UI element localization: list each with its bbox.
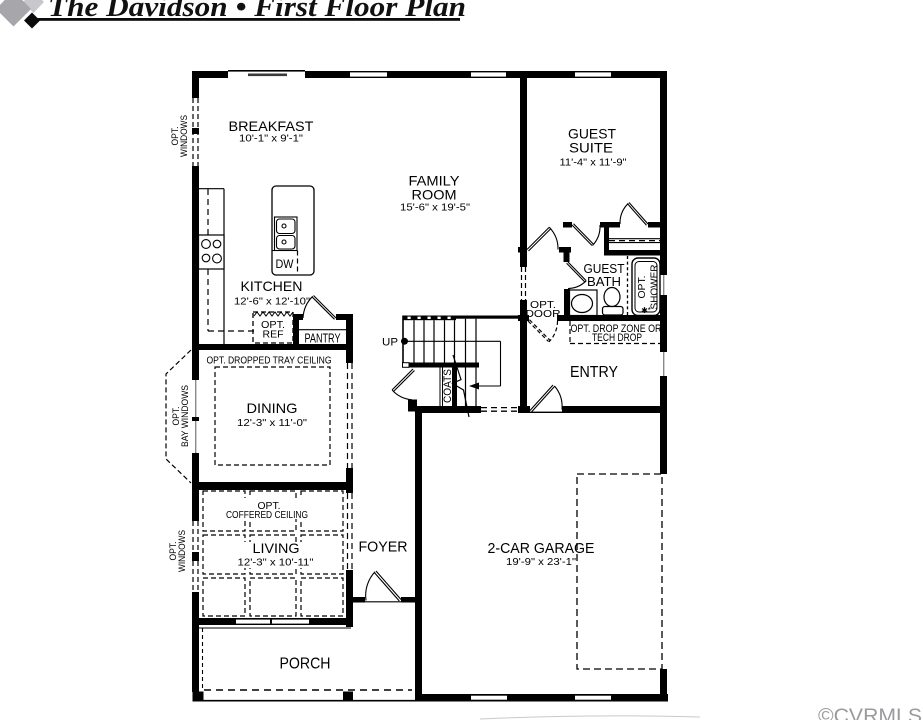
svg-text:OPT.: OPT. [636,276,648,299]
svg-text:BATH: BATH [587,274,621,289]
svg-text:✱*: ✱* [641,306,651,315]
svg-text:10'-1" x 9'-1": 10'-1" x 9'-1" [239,133,303,145]
svg-text:The Davidson • First Floor Pla: The Davidson • First Floor Plan [48,0,466,23]
svg-text:DINING: DINING [247,400,298,416]
svg-text:19'-9" x 23'-1": 19'-9" x 23'-1" [506,556,576,568]
svg-text:SUITE: SUITE [569,140,613,156]
svg-text:DOOR: DOOR [526,308,561,320]
svg-text:ROOM: ROOM [412,187,457,203]
svg-text:LIVING: LIVING [253,540,300,556]
svg-text:DW: DW [276,257,295,271]
svg-text:12'-3" x 11'-0": 12'-3" x 11'-0" [237,417,307,429]
svg-text:PANTRY: PANTRY [305,331,341,346]
svg-text:SHOWER: SHOWER [649,264,661,309]
svg-text:WINDOWS: WINDOWS [177,530,187,572]
svg-text:©CVRMLS: ©CVRMLS [818,706,922,720]
svg-text:12'-3" x 10'-11": 12'-3" x 10'-11" [238,557,314,569]
svg-text:KITCHEN: KITCHEN [241,278,303,294]
svg-text:12'-6" x 12'-10": 12'-6" x 12'-10" [234,296,310,308]
svg-text:WINDOWS: WINDOWS [179,115,189,157]
svg-text:COATS: COATS [442,369,454,403]
svg-text:PORCH: PORCH [280,656,331,673]
svg-text:TECH DROP: TECH DROP [592,332,642,344]
svg-text:15'-6" x 19'-5": 15'-6" x 19'-5" [400,202,470,214]
svg-text:REF: REF [263,330,284,341]
svg-text:2-CAR GARAGE: 2-CAR GARAGE [488,541,595,557]
svg-text:OPT. DROPPED TRAY CEILING: OPT. DROPPED TRAY CEILING [207,356,332,367]
svg-text:COFFERED CEILING: COFFERED CEILING [226,510,308,521]
svg-text:BAY WINDOWS: BAY WINDOWS [180,385,190,447]
svg-text:ENTRY: ENTRY [570,364,618,381]
svg-text:11'-4" x 11'-9": 11'-4" x 11'-9" [560,157,627,169]
svg-text:UP: UP [382,337,398,349]
svg-text:FOYER: FOYER [359,539,408,556]
